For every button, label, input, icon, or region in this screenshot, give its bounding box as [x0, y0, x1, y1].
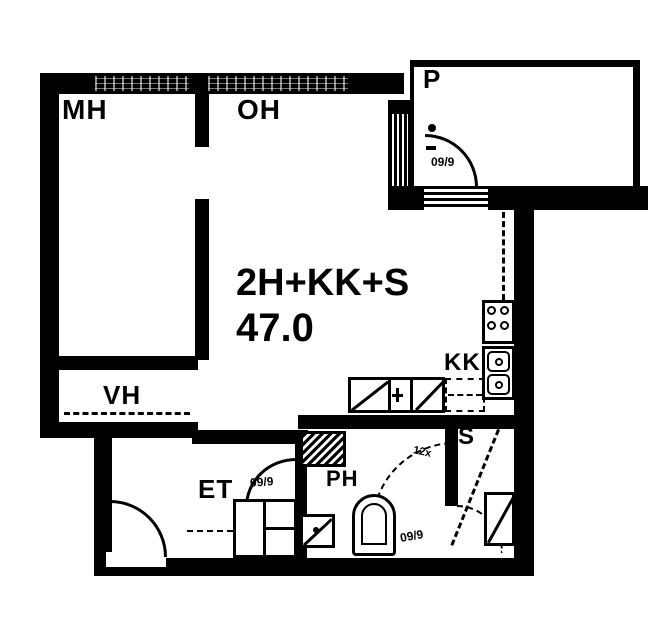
room-label-ph: PH [326, 466, 359, 492]
wall-bottom-main [166, 558, 534, 576]
wall-et-top [192, 430, 308, 444]
ph-washing-machine [300, 431, 346, 467]
kitchen-counter-line [448, 394, 482, 396]
door-mark-wc: 09/9 [399, 527, 424, 545]
window-oh [208, 76, 348, 91]
balcony-door-sill [424, 188, 488, 210]
kitchen-flue-dashed-line [502, 212, 505, 300]
wall-bottom-left [94, 558, 106, 576]
balcony-wall-right [633, 60, 640, 196]
et-dashed-line [187, 530, 233, 532]
sink-drain-2 [495, 381, 503, 389]
balcony-wall-top [410, 60, 640, 67]
entrance-threshold-outer [106, 567, 166, 576]
wall-right [514, 195, 534, 576]
wall-mh-oh-upper [195, 94, 209, 147]
room-label-et: ET [198, 474, 233, 505]
appliance-mid-mark-h [392, 394, 403, 397]
room-label-balcony: P [423, 64, 441, 95]
stove-burner-4 [500, 321, 509, 330]
door-mark-ph: 09/9 [250, 474, 274, 490]
window-balcony-side [389, 114, 408, 186]
appliance-divider-2 [410, 377, 413, 413]
apartment-type-label: 2H+KK+S [236, 262, 409, 305]
et-closet-divider-h [263, 527, 297, 530]
stove-burner-1 [487, 306, 496, 315]
room-label-mh: MH [62, 94, 108, 126]
wall-vh-bottom [40, 422, 198, 438]
room-label-kk: KK [444, 349, 481, 377]
stove-burner-2 [500, 306, 509, 315]
wall-mh-oh-lower [195, 199, 209, 360]
ph-floor-drain-dot [313, 527, 319, 533]
wall-vh-top [58, 356, 198, 370]
balcony-door-hinge-dot [428, 124, 436, 132]
room-label-oh: OH [237, 94, 281, 126]
balcony-wall-left [410, 66, 414, 188]
apartment-area-label: 47.0 [236, 306, 314, 351]
stove-burner-3 [487, 321, 496, 330]
toilet-bowl [361, 503, 387, 545]
window-mh [95, 76, 189, 91]
floor-plan: MH OH P VH ET PH KK S 2H+KK+S 47.0 09/9 … [0, 0, 650, 630]
door-mark-balcony: 09/9 [431, 155, 454, 169]
vh-clothes-rod [64, 412, 190, 415]
wall-left-upper [40, 73, 59, 438]
sink-drain-1 [495, 358, 503, 366]
room-label-sauna: S [458, 423, 475, 451]
balcony-door-leaf [426, 146, 436, 150]
entrance-door-arc [110, 500, 167, 557]
room-label-vh: VH [103, 380, 141, 411]
wall-ph-sauna-top [298, 415, 534, 429]
